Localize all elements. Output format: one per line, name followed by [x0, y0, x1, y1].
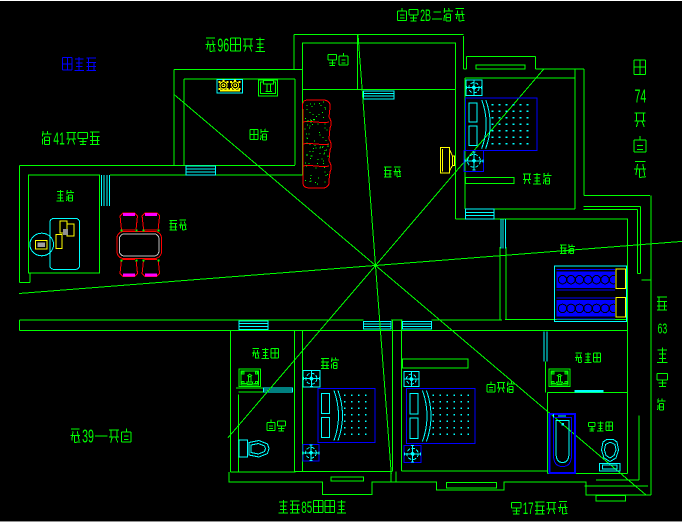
- svg-text:96: 96: [217, 36, 229, 56]
- svg-text:17: 17: [523, 499, 534, 518]
- svg-text:63: 63: [658, 321, 668, 338]
- svg-text:74: 74: [635, 87, 647, 107]
- svg-text:41: 41: [53, 129, 64, 149]
- svg-text:2B: 2B: [420, 6, 431, 25]
- svg-text:39: 39: [82, 427, 94, 447]
- svg-text:85: 85: [301, 498, 312, 517]
